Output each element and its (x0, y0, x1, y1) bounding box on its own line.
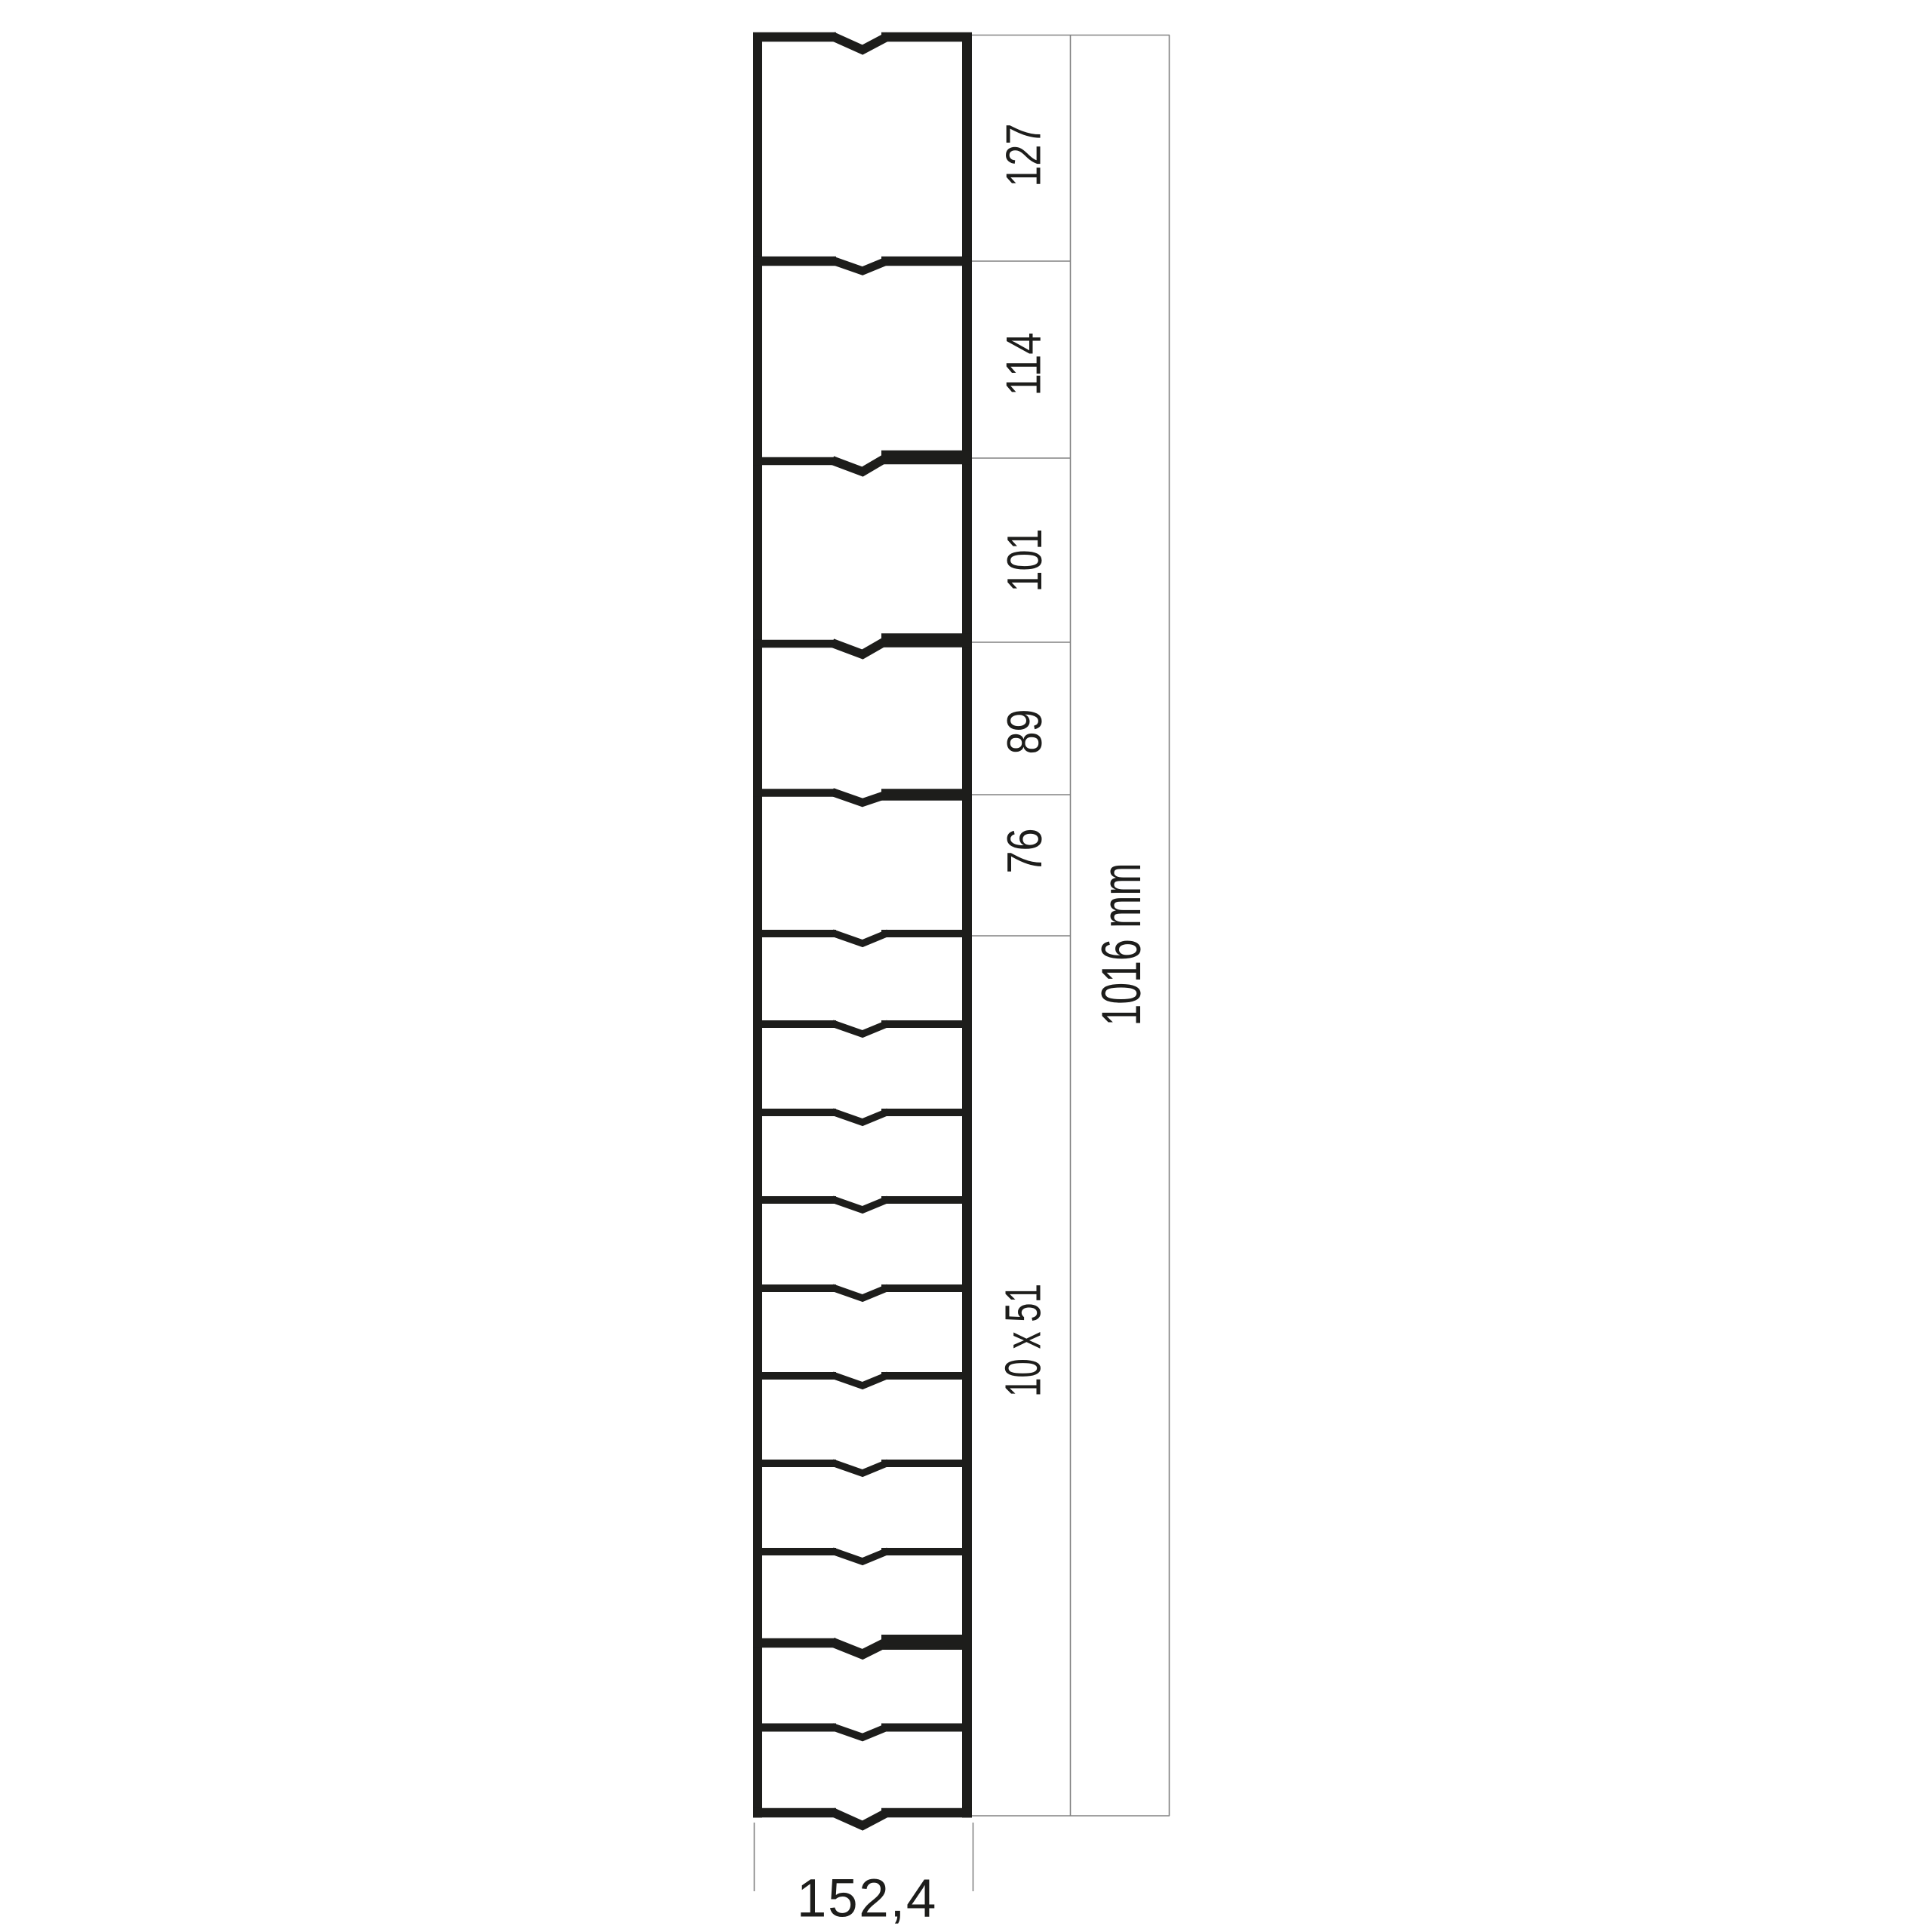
svg-text:76: 76 (997, 829, 1052, 874)
svg-text:89: 89 (997, 709, 1052, 755)
svg-text:114: 114 (996, 333, 1051, 396)
svg-text:101: 101 (997, 529, 1052, 592)
svg-text:127: 127 (996, 124, 1051, 187)
svg-text:1016 mm: 1016 mm (1090, 863, 1152, 1026)
svg-text:152,4: 152,4 (797, 1869, 937, 1928)
svg-text:10 x 51: 10 x 51 (995, 1284, 1052, 1397)
